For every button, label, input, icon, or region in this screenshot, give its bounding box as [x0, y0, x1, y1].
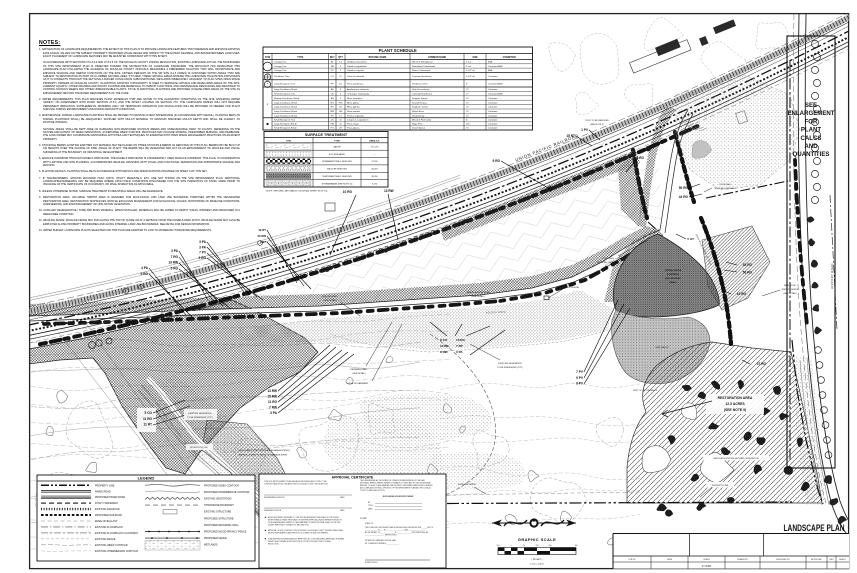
- svg-text:Native Rose: Native Rose: [412, 110, 425, 113]
- svg-text:Western Honeylocust: Western Honeylocust: [412, 61, 433, 64]
- svg-text:Container: Container: [488, 97, 498, 100]
- svg-text:9 RG: 9 RG: [141, 272, 149, 276]
- svg-text:"WILDLIFE CROSSING": "WILDLIFE CROSSING": [597, 262, 620, 264]
- svg-text:11 RG: 11 RG: [143, 417, 153, 421]
- svg-text:PLANT: PLANT: [801, 127, 822, 134]
- svg-text:CATTAIL GROVE: CATTAIL GROVE: [665, 269, 682, 272]
- svg-text:Common Hackberry: Common Hackberry: [412, 75, 432, 78]
- svg-text:DITCH / WATERWAY: DITCH / WATERWAY: [95, 502, 119, 505]
- svg-text:PLANTINGS: PLANTINGS: [667, 273, 680, 276]
- svg-text:(SEE DETAIL): (SEE DETAIL): [471, 295, 485, 298]
- svg-text:9 RG: 9 RG: [493, 159, 501, 163]
- svg-text:8 CO: 8 CO: [440, 338, 448, 342]
- svg-text:9,270: 9,270: [372, 183, 378, 185]
- svg-text:RESOLUTION.: RESOLUTION.: [268, 543, 279, 545]
- svg-text:0: 0: [511, 545, 512, 547]
- svg-text:15 RT: 15 RT: [566, 134, 575, 138]
- svg-text:APPROVAL: APPROVAL: [811, 558, 823, 561]
- svg-text:CO: CO: [331, 76, 335, 78]
- svg-text:B&B: B&B: [488, 70, 493, 72]
- svg-text:COMPLETE AND IN ACCORDANCE WIT: COMPLETE AND IN ACCORDANCE WITH DOUGLAS …: [264, 483, 329, 486]
- svg-text:AND WETLAND: AND WETLAND: [665, 277, 681, 280]
- svg-text:44 RG: 44 RG: [679, 195, 689, 199]
- svg-text:Container/B&B: Container/B&B: [488, 65, 503, 68]
- svg-text:LIMIT OF DISTURBANCE: LIMIT OF DISTURBANCE: [633, 389, 658, 392]
- svg-text:KEY: KEY: [330, 57, 335, 59]
- svg-text:Container: Container: [488, 127, 498, 130]
- svg-text:Large Evergreen Shrub: Large Evergreen Shrub: [274, 123, 298, 126]
- svg-text:( IN FEET ): ( IN FEET ): [531, 559, 542, 561]
- svg-text:Large Deciduous Shrub: Large Deciduous Shrub: [274, 110, 298, 113]
- svg-text:12 RG: 12 RG: [440, 344, 450, 348]
- svg-text:Populus sargentii: Populus sargentii: [347, 69, 364, 72]
- svg-text:DATE: DATE: [667, 558, 673, 561]
- svg-text:19 RG: 19 RG: [737, 292, 747, 296]
- svg-text:PROPOSED FENCE: PROPOSED FENCE: [204, 537, 227, 540]
- svg-text:DESIGNED BY: DESIGNED BY: [776, 559, 790, 561]
- svg-text:PAVED ROAD: PAVED ROAD: [95, 490, 111, 493]
- svg-text:POST SIGN: POST SIGN: [719, 184, 731, 186]
- svg-text:Container: Container: [488, 123, 498, 126]
- svg-text:PRIVACY FENCE: PRIVACY FENCE: [782, 288, 799, 291]
- svg-text:COMMON NAME: COMMON NAME: [428, 56, 447, 59]
- svg-text:RESTORATION AREA: RESTORATION AREA: [718, 396, 753, 400]
- svg-text:EXISTING INDEX CONTOUR: EXISTING INDEX CONTOUR: [95, 544, 128, 547]
- svg-text:PLANT SCHEDULE: PLANT SCHEDULE: [379, 48, 417, 53]
- svg-text:SYM: SYM: [265, 57, 270, 59]
- svg-text:HYDROZONE BOUNDARY: HYDROZONE BOUNDARY: [204, 504, 234, 507]
- svg-text:Amelanchier utahensis: Amelanchier utahensis: [347, 88, 370, 91]
- svg-text:200: 200: [549, 545, 552, 547]
- svg-text:CONDITION: CONDITION: [503, 57, 516, 59]
- svg-text:SURFACE TREATMENT: SURFACE TREATMENT: [305, 133, 348, 137]
- svg-text:PROPOSED PAVED ROAD: PROPOSED PAVED ROAD: [95, 496, 125, 499]
- svg-text:Rhus glabra: Rhus glabra: [347, 101, 360, 104]
- svg-text:MATCHES EXISTING WETLAND VEGET: MATCHES EXISTING WETLAND VEGETATION: [714, 457, 759, 460]
- svg-text:Celtis occidentalis: Celtis occidentalis: [347, 75, 365, 78]
- svg-text:LEGEND: LEGEND: [138, 476, 155, 481]
- svg-text:100: 100: [536, 545, 539, 547]
- svg-text:30,416: 30,416: [371, 169, 378, 171]
- svg-text:15 RW: 15 RW: [267, 395, 277, 399]
- svg-text:Ponderosa Pine: Ponderosa Pine: [412, 82, 428, 85]
- svg-text:ENLARGEMENT: ENLARGEMENT: [787, 110, 834, 117]
- svg-text:LANDSCAPE PLAN: LANDSCAPE PLAN: [784, 523, 845, 533]
- svg-text:SWALE: SWALE: [669, 281, 677, 284]
- svg-text:Rosa woodsii: Rosa woodsii: [347, 111, 361, 113]
- svg-text:EXISTING FENCE: EXISTING FENCE: [458, 484, 476, 486]
- svg-text:Small Deciduous Tree: Small Deciduous Tree: [274, 93, 296, 96]
- svg-text:EXISTING VEGETATION: EXISTING VEGETATION: [204, 498, 232, 501]
- svg-text:PLANNING DIVISION: PLANNING DIVISION: [264, 509, 282, 512]
- svg-text:Staghorn Sumac: Staghorn Sumac: [412, 106, 429, 109]
- svg-text:Large Deciduous Shrub: Large Deciduous Shrub: [274, 101, 298, 104]
- svg-text:ENGINEERING DIVISION: ENGINEERING DIVISION: [264, 497, 285, 499]
- svg-text:Dwarf Spruce: Dwarf Spruce: [412, 127, 426, 130]
- svg-text:DRAWN BY: DRAWN BY: [737, 558, 748, 561]
- svg-text:Container: Container: [488, 88, 498, 91]
- svg-text:7 PV: 7 PV: [576, 370, 584, 374]
- svg-text:RG: RG: [331, 102, 335, 104]
- svg-text:Small Evergreen Tree: Small Evergreen Tree: [274, 119, 296, 122]
- svg-text:COUNTY ZONING RESOLUTION.: COUNTY ZONING RESOLUTION.: [360, 490, 385, 492]
- svg-text:Plains Cottonwood: Plains Cottonwood: [412, 69, 431, 72]
- svg-text:APPROVAL CERTIFICATE: APPROVAL CERTIFICATE: [332, 476, 374, 480]
- svg-text:Container/B&B: Container/B&B: [488, 82, 503, 85]
- svg-text:EXISTING FLOODPLAIN / FLOODWAY: EXISTING FLOODPLAIN / FLOODWAY: [95, 532, 139, 535]
- svg-text:5 RG: 5 RG: [171, 266, 179, 270]
- svg-text:REV: REV: [829, 559, 834, 561]
- svg-text:Container: Container: [488, 106, 498, 109]
- svg-text:5 CO: 5 CO: [145, 411, 153, 415]
- svg-text:EXISTING FLOODPLAIN: EXISTING FLOODPLAIN: [95, 526, 123, 529]
- svg-text:Narrowleaf Cottonwood: Narrowleaf Cottonwood: [412, 65, 436, 68]
- svg-text:5 GT: 5 GT: [687, 237, 694, 241]
- svg-text:Colorado Hawthorne: Colorado Hawthorne: [412, 93, 433, 96]
- svg-text:PROPERTY LINE: PROPERTY LINE: [712, 485, 729, 487]
- svg-text:Rhus typhina: Rhus typhina: [347, 106, 361, 109]
- svg-text:Rhus aromatica: Rhus aromatica: [347, 97, 363, 100]
- svg-text:PROPERTY LINE: PROPERTY LINE: [95, 484, 115, 487]
- svg-text:STILLING WELL: STILLING WELL: [322, 296, 338, 298]
- svg-text:13 RW: 13 RW: [267, 389, 277, 393]
- svg-text:Mugo Pine: Mugo Pine: [412, 124, 423, 126]
- svg-text:NOTE: SEED/COVER OVER BANKED A: NOTE: SEED/COVER OVER BANKED AREA EXTEND…: [239, 449, 290, 452]
- svg-text:______________________ RESPECT: ______________________ RESPECTIVELY.: [364, 535, 398, 537]
- svg-text:(SEE DETAIL): (SEE DETAIL): [783, 292, 797, 295]
- svg-text:WELL HOUSE: WELL HOUSE: [565, 287, 580, 289]
- svg-text:SOD IRRIGATED: SOD IRRIGATED: [329, 153, 346, 156]
- svg-text:SEE: SEE: [805, 102, 817, 109]
- svg-text:Large Deciduous Shrub: Large Deciduous Shrub: [274, 88, 298, 91]
- svg-text:9 PV: 9 PV: [576, 376, 584, 380]
- svg-text:PG: PG: [331, 128, 334, 130]
- svg-text:2-1/2"cal.: 2-1/2"cal.: [466, 76, 476, 78]
- svg-text:56 RG: 56 RG: [743, 271, 753, 275]
- svg-text:20 RW: 20 RW: [258, 234, 267, 238]
- svg-text:3 PA: 3 PA: [270, 411, 278, 415]
- svg-text:TO BE PRESERVED (TYP.): TO BE PRESERVED (TYP.): [187, 417, 213, 419]
- svg-text:7 PV: 7 PV: [199, 251, 207, 255]
- svg-text:45 RG: 45 RG: [743, 263, 753, 267]
- svg-text:Fragrant Sumac: Fragrant Sumac: [412, 97, 429, 100]
- svg-text:9 RW: 9 RW: [440, 350, 448, 354]
- svg-text:Deciduous Tree: Deciduous Tree: [274, 75, 290, 78]
- svg-text:PROPOSED RAILROAD: PROPOSED RAILROAD: [95, 514, 122, 517]
- svg-text:SCALE: SCALE: [703, 558, 710, 561]
- svg-text:Picea glauca: Picea glauca: [347, 128, 360, 130]
- svg-text:400: 400: [575, 545, 578, 547]
- svg-text:EXISTING RAILROAD: EXISTING RAILROAD: [95, 508, 120, 511]
- svg-text:EXISTING VEGETATION: EXISTING VEGETATION: [498, 362, 522, 365]
- svg-text:AIRPORT ROAD: AIRPORT ROAD: [830, 263, 834, 289]
- svg-text:Large Evergreen Tree: Large Evergreen Tree: [274, 82, 296, 85]
- svg-text:EDGE OF PAVEMENT: EDGE OF PAVEMENT: [347, 382, 369, 385]
- svg-text:Canopy Tree: Canopy Tree: [274, 65, 287, 68]
- svg-text:13 RW: 13 RW: [168, 261, 178, 265]
- svg-text:B&B: B&B: [488, 62, 493, 64]
- svg-text:POST TO BE REMOVED: POST TO BE REMOVED: [585, 120, 609, 122]
- svg-text:"WILDLIFE CROSSING": "WILDLIFE CROSSING": [714, 188, 737, 190]
- svg-text:Medium Deciduous Shrub: Medium Deciduous Shrub: [274, 97, 300, 100]
- svg-text:WILDLIFE SEED MIX: WILDLIFE SEED MIX: [327, 169, 348, 171]
- svg-text:AREA S.F.: AREA S.F.: [369, 139, 380, 142]
- svg-text:JOB NO: JOB NO: [628, 559, 636, 561]
- svg-text:(SEE DETAIL): (SEE DETAIL): [323, 299, 337, 302]
- svg-text:PM: PM: [331, 124, 334, 126]
- svg-text:EXISTING STRUCTURE: EXISTING STRUCTURE: [204, 511, 231, 514]
- svg-text:SIZE: SIZE: [472, 57, 478, 59]
- svg-text:DATE:: DATE:: [368, 507, 374, 510]
- svg-text:3 PA: 3 PA: [456, 350, 463, 354]
- svg-text:CALCS: CALCS: [801, 135, 822, 142]
- svg-text:WETLANDS: WETLANDS: [204, 544, 218, 547]
- svg-text:Container/B&B: Container/B&B: [488, 93, 503, 96]
- svg-text:RESTORATION: RESTORATION: [656, 346, 670, 349]
- svg-text:Canopy Tree: Canopy Tree: [274, 61, 287, 64]
- svg-text:Container: Container: [488, 101, 498, 104]
- svg-text:PROPOSED INDEX CONTOUR: PROPOSED INDEX CONTOUR: [204, 484, 239, 487]
- svg-text:CE: CE: [331, 94, 335, 96]
- svg-text:Prunus virginiana: Prunus virginiana: [347, 115, 365, 118]
- svg-text:11 RG: 11 RG: [268, 400, 278, 404]
- svg-text:STATE OF: STATE OF: [365, 522, 373, 525]
- svg-text:12 RT: 12 RT: [258, 228, 266, 232]
- svg-text:PROPOSED INTERMEDIATE CONTOUR: PROPOSED INTERMEDIATE CONTOUR: [204, 491, 250, 494]
- svg-text:STREAM/BASIN (SEE NOTE 11): STREAM/BASIN (SEE NOTE 11): [322, 182, 353, 185]
- svg-text:11 RT: 11 RT: [143, 423, 152, 427]
- svg-text:TYPE: TYPE: [334, 140, 340, 142]
- svg-text:571,176: 571,176: [371, 146, 379, 148]
- svg-text:PROPOSED RETAINING WALL: PROPOSED RETAINING WALL: [204, 524, 239, 527]
- svg-text:Pinus mugo: Pinus mugo: [347, 124, 359, 126]
- svg-text:EXISTING INTERMEDIATE CONTOUR: EXISTING INTERMEDIATE CONTOUR: [95, 550, 138, 553]
- svg-text:9 RT: 9 RT: [260, 240, 266, 244]
- svg-text:39,310: 39,310: [371, 176, 378, 178]
- svg-text:10 RG: 10 RG: [343, 190, 353, 194]
- svg-text:Container: Container: [488, 119, 498, 122]
- svg-text:Container: Container: [488, 75, 498, 78]
- svg-text:(SEE DETAIL): (SEE DETAIL): [352, 372, 366, 375]
- svg-text:Juniperus scopulorum: Juniperus scopulorum: [347, 119, 369, 122]
- svg-text:AU: AU: [331, 88, 334, 91]
- svg-text:74,559: 74,559: [371, 161, 378, 163]
- svg-text:Utah Serviceberry: Utah Serviceberry: [412, 88, 430, 91]
- svg-text:100: 100: [497, 545, 500, 547]
- svg-text:PROPOSED STRUCTURE: PROPOSED STRUCTURE: [204, 517, 234, 520]
- svg-text:EXISTING VEGETATION: EXISTING VEGETATION: [188, 412, 212, 415]
- svg-text:RA: RA: [331, 97, 335, 100]
- svg-text:Large Deciduous Shrub: Large Deciduous Shrub: [274, 106, 298, 109]
- svg-text:8 PV: 8 PV: [576, 382, 584, 386]
- svg-text:GRAPHIC SCALE: GRAPHIC SCALE: [518, 537, 556, 542]
- svg-text:TYPE: TYPE: [297, 57, 303, 59]
- svg-text:PROPOSED WOOD PRIVACY FENCE: PROPOSED WOOD PRIVACY FENCE: [204, 531, 247, 534]
- svg-text:1 inch = 100 ft.: 1 inch = 100 ft.: [530, 563, 545, 566]
- svg-text:NEW WOOD: NEW WOOD: [784, 285, 797, 287]
- svg-text:GRAVEL ACCESS ROAD: GRAVEL ACCESS ROAD: [466, 291, 490, 294]
- svg-text:APPROX. 50 FEET TO WEST OF DRA: APPROX. 50 FEET TO WEST OF DRAINAGE EVEN…: [239, 454, 288, 457]
- svg-text:SYM: SYM: [286, 140, 291, 142]
- svg-text:9 RG: 9 RG: [199, 256, 207, 260]
- svg-text:3 PA: 3 PA: [199, 240, 207, 244]
- svg-text:QTY: QTY: [338, 57, 343, 59]
- svg-text:MY COMMISSION EXPIRES: _______: MY COMMISSION EXPIRES: ______________: [365, 543, 399, 545]
- svg-text:TEMPORARY/WELL SEED MIX: TEMPORARY/WELL SEED MIX: [322, 175, 352, 178]
- svg-text:4 PA: 4 PA: [141, 266, 149, 270]
- svg-text:SHEET: SHEET: [839, 559, 846, 561]
- svg-text:BOTANIC NAME: BOTANIC NAME: [369, 56, 387, 59]
- svg-text:12.3 ACRES: 12.3 ACRES: [725, 402, 745, 406]
- svg-text:Western Red Cedar: Western Red Cedar: [412, 119, 432, 122]
- svg-text:TO BE PRESERVED (TYP.): TO BE PRESERVED (TYP.): [497, 367, 523, 369]
- svg-text:NATIVE: NATIVE: [333, 145, 341, 148]
- svg-text:RETENTION POND: RETENTION POND: [190, 447, 208, 449]
- svg-text:Populus angustifolia: Populus angustifolia: [347, 65, 367, 68]
- svg-text:BUCK ANGELSON ESTATE OWNER: BUCK ANGELSON ESTATE OWNER: [383, 495, 414, 498]
- svg-text:Gleditsia triacanthos: Gleditsia triacanthos: [347, 61, 368, 64]
- svg-text:QUANTITIES: QUANTITIES: [793, 151, 830, 158]
- svg-text:50 RG: 50 RG: [679, 186, 689, 190]
- svg-text:3 PA: 3 PA: [171, 249, 179, 253]
- svg-text:Smooth Sumac: Smooth Sumac: [412, 101, 428, 104]
- svg-text:1 PV: 1 PV: [581, 128, 589, 132]
- svg-text:15 RG: 15 RG: [456, 338, 466, 342]
- svg-text:POST SIGN: POST SIGN: [602, 258, 614, 260]
- svg-text:Crataegus erythropoda: Crataegus erythropoda: [347, 93, 370, 96]
- svg-text:37 RG: 37 RG: [757, 362, 767, 366]
- svg-text:7 RG: 7 RG: [171, 255, 179, 259]
- svg-text:2"cal.: 2"cal.: [466, 62, 472, 64]
- svg-text:7 RT: 7 RT: [456, 344, 463, 348]
- svg-text:(SEE NOTE 2): (SEE NOTE 2): [590, 124, 604, 126]
- svg-text:7 RW: 7 RW: [269, 406, 277, 410]
- svg-text:RETAINING WALL: RETAINING WALL: [350, 368, 368, 371]
- svg-text:Large Deciduous Shrub: Large Deciduous Shrub: [274, 115, 298, 118]
- svg-text:Chokecherry: Chokecherry: [412, 115, 425, 118]
- svg-text:3 PA: 3 PA: [199, 245, 207, 249]
- svg-text:Small Evergreen Shrub: Small Evergreen Shrub: [274, 127, 297, 130]
- svg-text:2"cal.: 2"cal.: [466, 66, 472, 68]
- svg-text:Pinus ponderosa: Pinus ponderosa: [347, 82, 364, 85]
- svg-text:EXISTING FENCE: EXISTING FENCE: [95, 538, 116, 541]
- svg-text:NOTE: SEE SEED MIX TABLES ON D: NOTE: SEE SEED MIX TABLES ON DETAIL SHEE…: [266, 190, 328, 193]
- svg-text:(SEE NOTE 9): (SEE NOTE 9): [724, 408, 746, 412]
- svg-text:FOR: FOR: [805, 118, 818, 125]
- svg-text:EDGE OF BALLAST: EDGE OF BALLAST: [95, 520, 118, 523]
- svg-text:PERMANENT/WELL SEED MIX: PERMANENT/WELL SEED MIX: [322, 160, 352, 163]
- svg-text:1-1/2"cal.: 1-1/2"cal.: [466, 70, 476, 72]
- svg-text:13 RW: 13 RW: [384, 189, 394, 193]
- svg-text:AND: AND: [804, 143, 818, 150]
- svg-text:Container: Container: [488, 115, 498, 118]
- svg-text:Canopy Tree: Canopy Tree: [274, 69, 287, 72]
- svg-text:NOTARY: NOTARY: [360, 517, 368, 520]
- svg-text:Container: Container: [488, 110, 498, 113]
- svg-text:50: 50: [523, 545, 525, 547]
- svg-text:TITLE:: TITLE:: [368, 505, 374, 507]
- svg-text:1"=100': 1"=100': [701, 564, 711, 568]
